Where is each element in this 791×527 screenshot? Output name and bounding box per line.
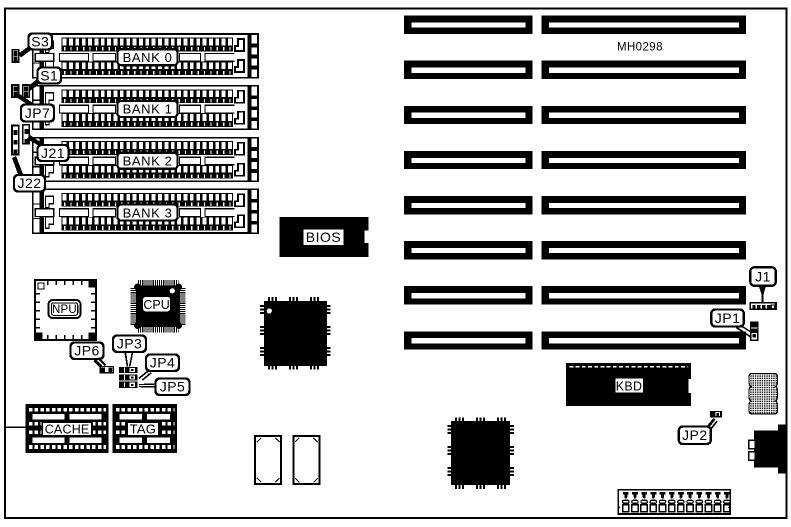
svg-text:TAG: TAG: [130, 421, 157, 436]
svg-text:JP3: JP3: [117, 336, 143, 352]
svg-text:BANK 3: BANK 3: [123, 205, 173, 220]
svg-text:CACHE: CACHE: [45, 422, 90, 436]
svg-text:S1: S1: [40, 67, 58, 83]
svg-text:BIOS: BIOS: [306, 229, 341, 245]
svg-text:NPU: NPU: [52, 304, 77, 316]
svg-text:JP2: JP2: [682, 427, 708, 443]
svg-text:JP5: JP5: [160, 379, 186, 395]
svg-text:CPU: CPU: [143, 298, 169, 312]
svg-text:JP6: JP6: [74, 343, 100, 359]
svg-text:JP4: JP4: [150, 355, 176, 371]
svg-text:BANK 0: BANK 0: [123, 50, 173, 65]
svg-text:KBD: KBD: [616, 379, 643, 393]
svg-text:MH0298: MH0298: [617, 42, 663, 54]
svg-text:J22: J22: [17, 175, 41, 191]
svg-text:J1: J1: [755, 268, 771, 284]
svg-text:BANK 2: BANK 2: [123, 154, 173, 169]
svg-text:BANK 1: BANK 1: [123, 102, 173, 117]
svg-text:JP7: JP7: [25, 105, 51, 121]
svg-text:JP1: JP1: [715, 310, 741, 326]
svg-text:J21: J21: [41, 145, 65, 161]
svg-text:S3: S3: [31, 33, 49, 49]
